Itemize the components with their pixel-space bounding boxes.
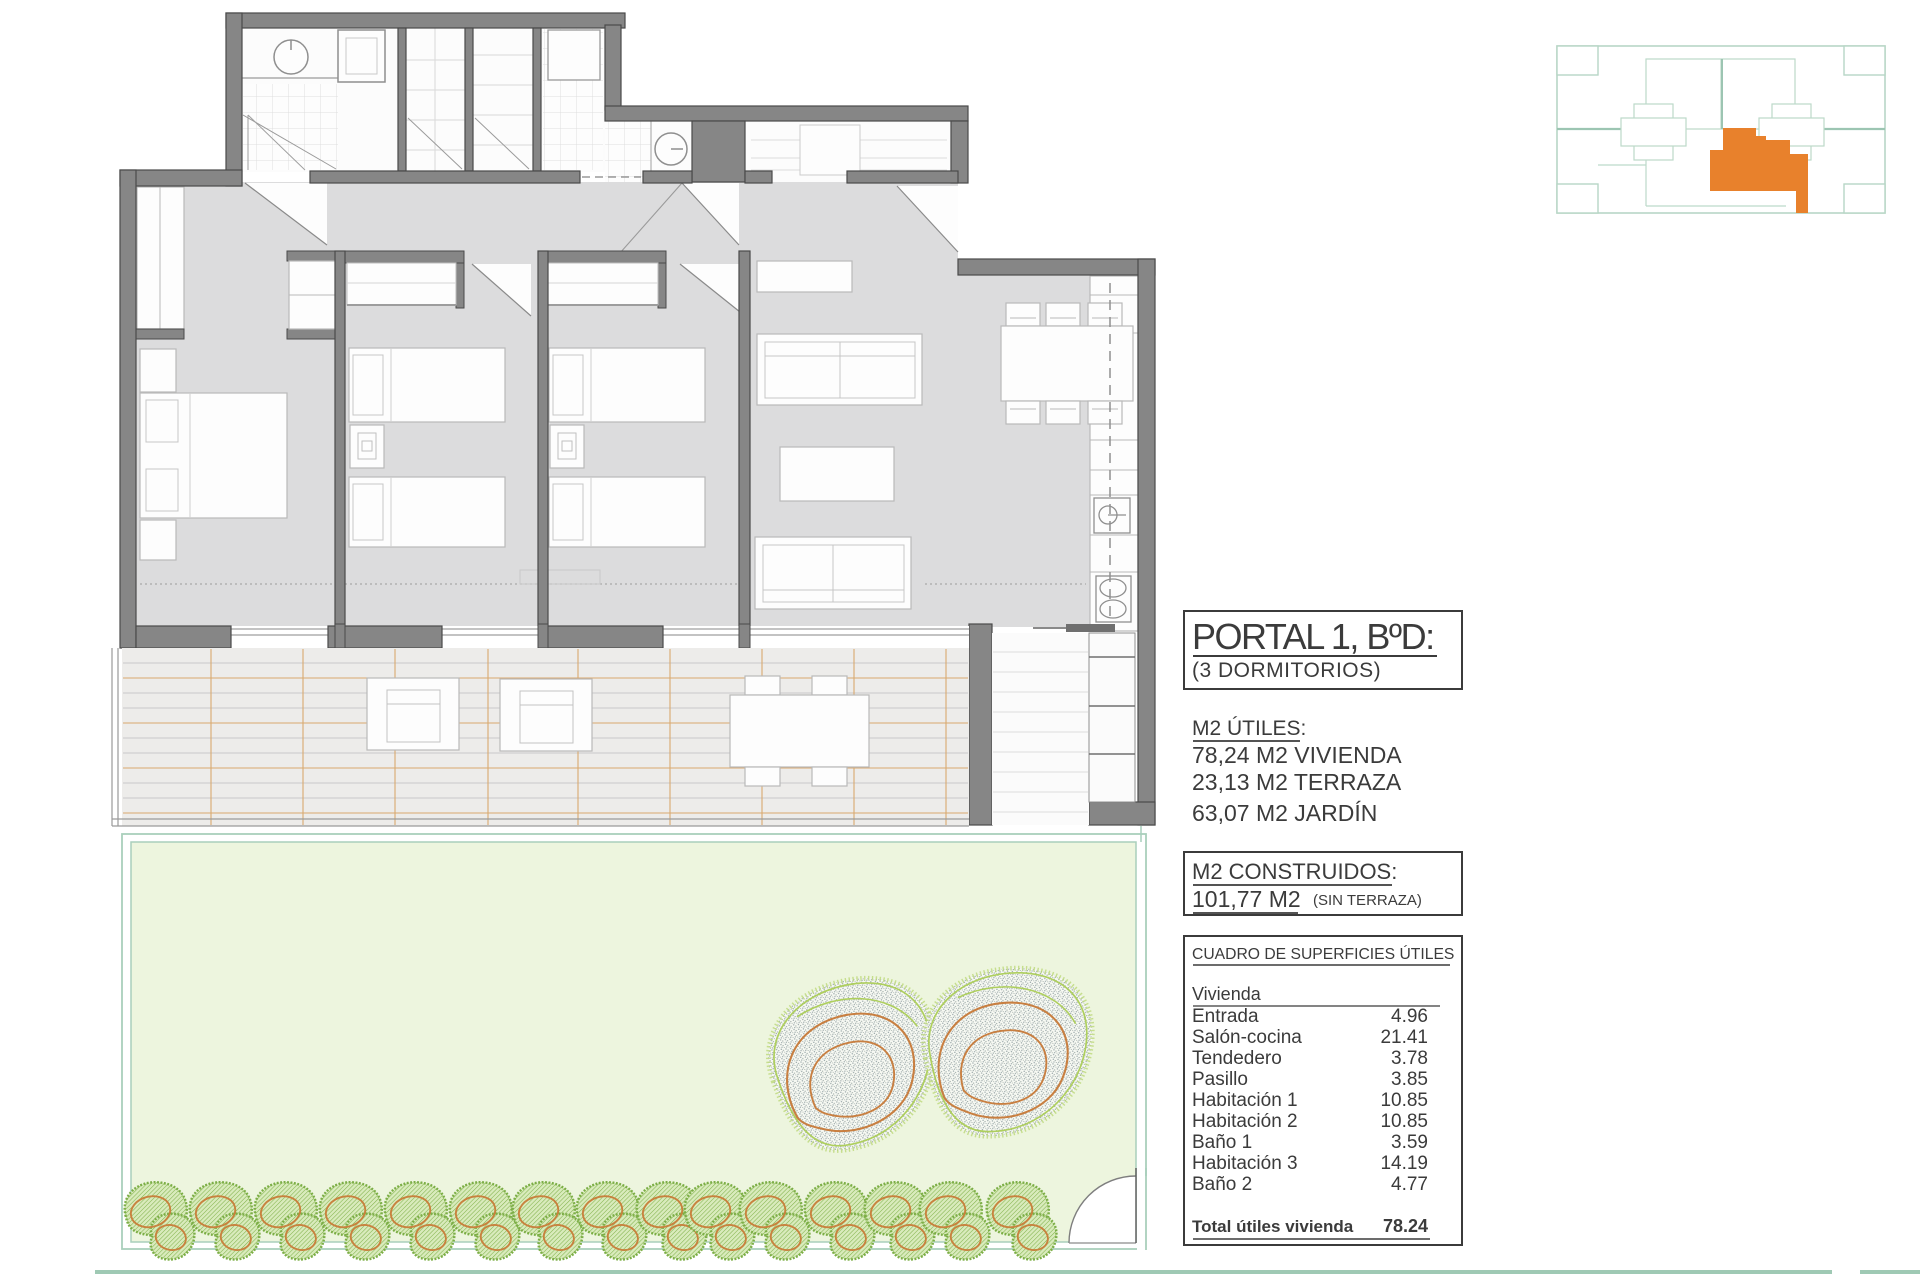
svg-text:Habitación 1: Habitación 1 — [1192, 1090, 1298, 1111]
svg-text:63,07 M2 JARDÍN: 63,07 M2 JARDÍN — [1192, 800, 1377, 826]
svg-text:Tendedero: Tendedero — [1192, 1048, 1282, 1069]
svg-text:101,77 M2: 101,77 M2 — [1192, 886, 1301, 912]
svg-text:21.41: 21.41 — [1380, 1027, 1428, 1048]
svg-text:Total útiles vivienda: Total útiles vivienda — [1192, 1217, 1354, 1236]
svg-text:Entrada: Entrada — [1192, 1006, 1259, 1027]
svg-text:Baño 2: Baño 2 — [1192, 1174, 1252, 1195]
svg-text:10.85: 10.85 — [1380, 1090, 1428, 1111]
svg-text:PORTAL 1, BºD:: PORTAL 1, BºD: — [1192, 616, 1434, 657]
svg-text:Habitación 3: Habitación 3 — [1192, 1153, 1298, 1174]
svg-text:78.24: 78.24 — [1383, 1216, 1428, 1236]
svg-text:CUADRO DE SUPERFICIES ÚTILES: CUADRO DE SUPERFICIES ÚTILES — [1192, 944, 1454, 963]
svg-text:10.85: 10.85 — [1380, 1111, 1428, 1132]
svg-text:M2 ÚTILES:: M2 ÚTILES: — [1192, 717, 1306, 740]
svg-text:Habitación 2: Habitación 2 — [1192, 1111, 1298, 1132]
svg-text:Baño 1: Baño 1 — [1192, 1132, 1252, 1153]
svg-text:Vivienda: Vivienda — [1192, 984, 1262, 1004]
svg-text:M2 CONSTRUIDOS:: M2 CONSTRUIDOS: — [1192, 859, 1397, 884]
svg-text:14.19: 14.19 — [1380, 1153, 1428, 1174]
svg-text:(3 DORMITORIOS): (3 DORMITORIOS) — [1192, 659, 1381, 682]
svg-text:3.78: 3.78 — [1391, 1048, 1428, 1069]
svg-text:78,24 M2 VIVIENDA: 78,24 M2 VIVIENDA — [1192, 742, 1402, 768]
svg-text:4.77: 4.77 — [1391, 1174, 1428, 1195]
svg-text:Pasillo: Pasillo — [1192, 1069, 1248, 1090]
svg-text:Salón-cocina: Salón-cocina — [1192, 1027, 1302, 1048]
svg-text:3.85: 3.85 — [1391, 1069, 1428, 1090]
svg-text:4.96: 4.96 — [1391, 1006, 1428, 1027]
svg-text:23,13 M2 TERRAZA: 23,13 M2 TERRAZA — [1192, 769, 1402, 795]
svg-text:3.59: 3.59 — [1391, 1132, 1428, 1153]
svg-text:(SIN TERRAZA): (SIN TERRAZA) — [1313, 892, 1422, 909]
